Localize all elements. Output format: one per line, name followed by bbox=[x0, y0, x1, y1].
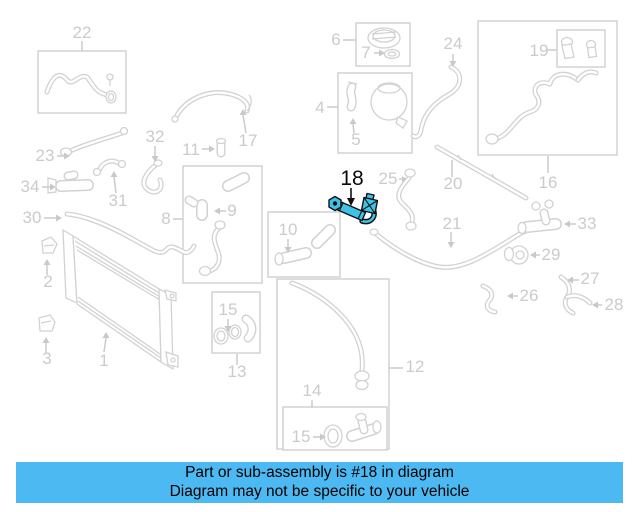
callout-10: 10 bbox=[279, 220, 298, 239]
part-21-hose-illustration bbox=[370, 229, 526, 267]
callout-14: 14 bbox=[303, 381, 322, 400]
callout-34: 34 bbox=[21, 177, 40, 196]
callout-9: 9 bbox=[227, 201, 236, 220]
callout-11: 11 bbox=[182, 140, 200, 159]
callout-22: 22 bbox=[73, 23, 92, 42]
part-24-hose-illustration bbox=[413, 67, 460, 137]
banner-line-1: Part or sub-assembly is #18 in diagram bbox=[185, 464, 454, 483]
callout-28: 28 bbox=[605, 295, 624, 314]
part-34-illustration bbox=[48, 175, 88, 193]
callout-21: 21 bbox=[443, 214, 462, 233]
callout-24: 24 bbox=[444, 34, 463, 53]
callout-25: 25 bbox=[379, 169, 398, 188]
callout-12: 12 bbox=[406, 357, 425, 376]
callout-6: 6 bbox=[331, 30, 340, 49]
callout-15: 15 bbox=[219, 300, 238, 319]
callout-5: 5 bbox=[351, 130, 360, 149]
part-17-hose-illustration bbox=[172, 93, 251, 122]
part-23-illustration bbox=[61, 128, 128, 157]
callout-17: 17 bbox=[239, 131, 258, 150]
part-26-hose-illustration bbox=[483, 286, 495, 312]
callout-15: 15 bbox=[292, 427, 311, 446]
part-11-illustration bbox=[217, 139, 226, 154]
callout-20: 20 bbox=[444, 174, 463, 193]
callout-23: 23 bbox=[36, 146, 55, 165]
part-25-hose-illustration bbox=[399, 169, 416, 230]
callout-2: 2 bbox=[43, 272, 52, 291]
callout-19: 19 bbox=[530, 41, 549, 60]
part-33-illustration bbox=[518, 200, 556, 234]
callout-13: 13 bbox=[228, 362, 247, 381]
callout-3: 3 bbox=[42, 349, 51, 368]
part-2-illustration bbox=[42, 237, 57, 253]
part-3-illustration bbox=[39, 315, 55, 331]
callout-29: 29 bbox=[542, 245, 561, 264]
status-banner: Part or sub-assembly is #18 in diagram D… bbox=[16, 462, 623, 503]
callout-1: 1 bbox=[99, 351, 108, 370]
part-31-illustration bbox=[94, 161, 126, 176]
callout-33: 33 bbox=[578, 214, 597, 233]
part-32-illustration bbox=[144, 160, 162, 192]
callout-32: 32 bbox=[146, 127, 165, 146]
callout-30: 30 bbox=[23, 208, 42, 227]
callout-18-highlighted: 18 bbox=[340, 167, 363, 190]
callout-4: 4 bbox=[315, 98, 324, 117]
part-29-illustration bbox=[505, 246, 529, 264]
banner-line-2: Diagram may not be specific to your vehi… bbox=[170, 483, 470, 502]
callout-7: 7 bbox=[361, 43, 370, 62]
callout-26: 26 bbox=[520, 286, 539, 305]
exploded-parts-diagram: 2223323134301117891067241916451825202133… bbox=[0, 0, 640, 512]
callout-16: 16 bbox=[539, 173, 558, 192]
callout-31: 31 bbox=[109, 191, 128, 210]
callout-27: 27 bbox=[581, 269, 600, 288]
parts-diagram-image: 2223323134301117891067241916451825202133… bbox=[0, 0, 640, 512]
callout-8: 8 bbox=[161, 209, 170, 228]
